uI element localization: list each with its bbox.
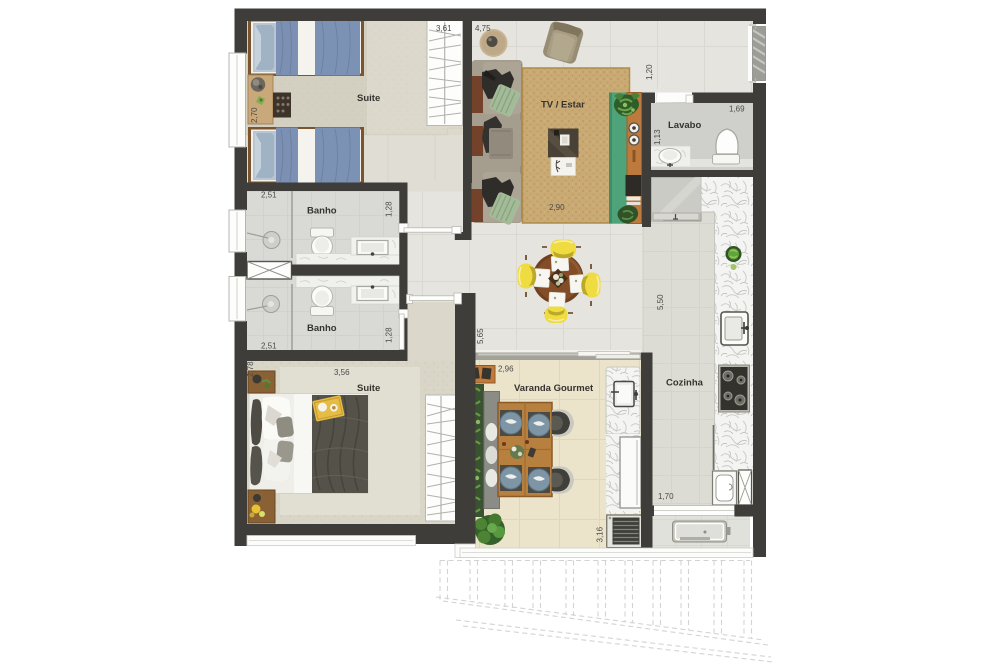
svg-text:2,51: 2,51: [261, 191, 277, 200]
svg-text:Suite: Suite: [357, 93, 380, 104]
svg-text:1,20: 1,20: [645, 64, 654, 80]
svg-text:2,51: 2,51: [261, 342, 277, 351]
svg-text:Lavabo: Lavabo: [668, 120, 701, 131]
svg-text:Banho: Banho: [307, 206, 337, 217]
svg-text:2,78: 2,78: [246, 361, 255, 377]
svg-text:3,56: 3,56: [334, 368, 350, 377]
svg-text:1,13: 1,13: [653, 129, 662, 145]
svg-text:2,90: 2,90: [549, 203, 565, 212]
svg-text:1,69: 1,69: [729, 105, 745, 114]
svg-text:TV / Estar: TV / Estar: [541, 100, 585, 111]
svg-text:1,28: 1,28: [385, 327, 394, 343]
svg-text:Suite: Suite: [357, 383, 380, 394]
svg-text:Varanda Gourmet: Varanda Gourmet: [514, 383, 594, 394]
svg-text:Banho: Banho: [307, 323, 337, 334]
svg-text:3,61: 3,61: [436, 24, 452, 33]
svg-text:3,16: 3,16: [596, 526, 605, 542]
svg-text:2,70: 2,70: [250, 107, 259, 123]
svg-text:2,96: 2,96: [498, 365, 514, 374]
svg-text:5,65: 5,65: [476, 328, 485, 344]
svg-text:4,75: 4,75: [475, 24, 491, 33]
svg-text:5,50: 5,50: [656, 294, 665, 310]
svg-text:Cozinha: Cozinha: [666, 378, 704, 389]
svg-text:1,70: 1,70: [658, 492, 674, 501]
svg-text:1,28: 1,28: [385, 201, 394, 217]
